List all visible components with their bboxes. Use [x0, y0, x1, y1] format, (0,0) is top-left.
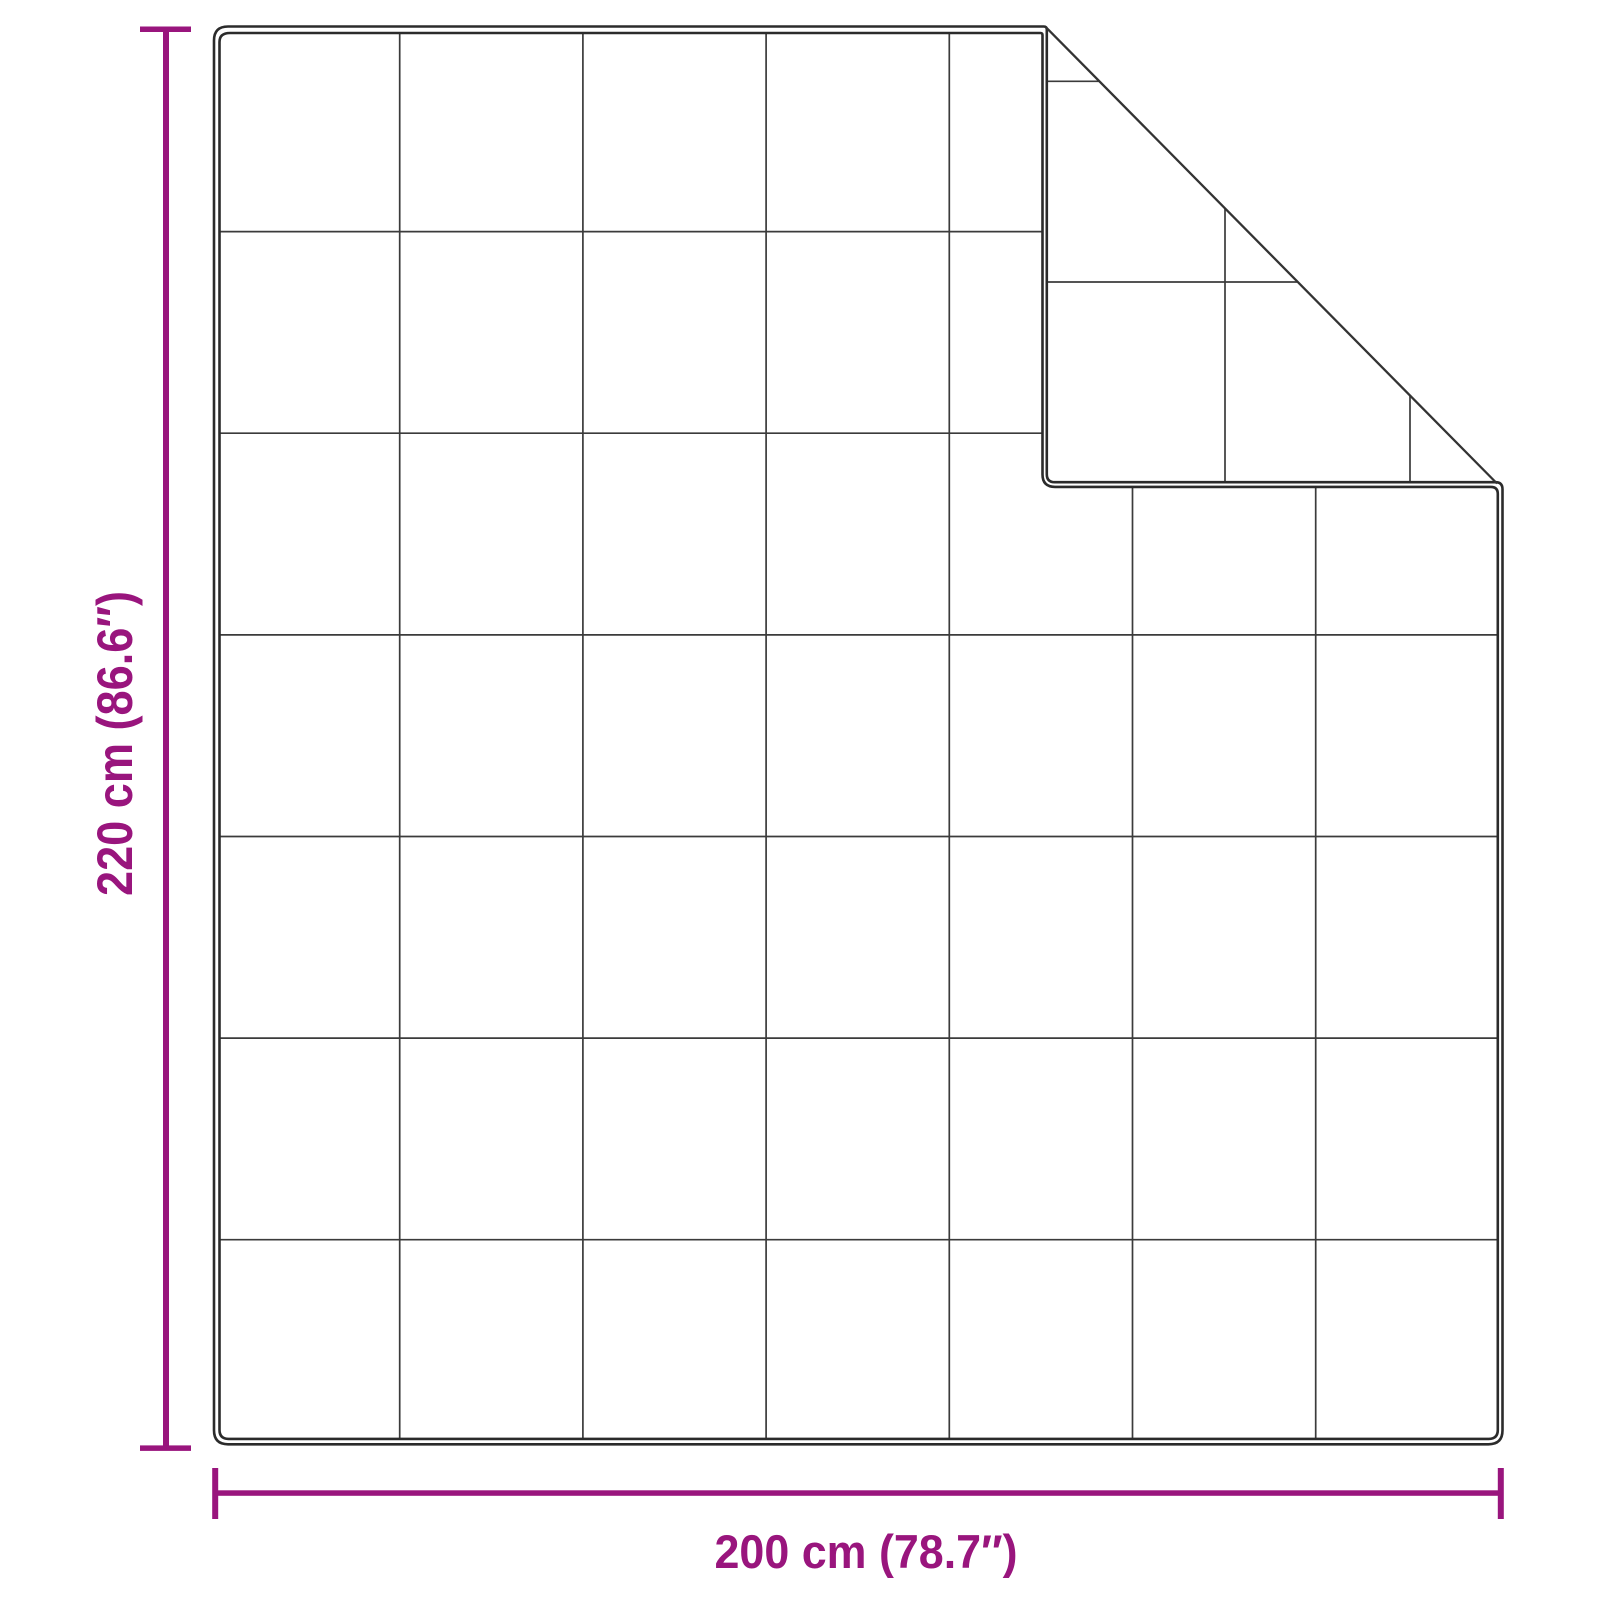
svg-text:220 cm (86.6″): 220 cm (86.6″): [87, 591, 143, 896]
svg-text:200 cm (78.7″): 200 cm (78.7″): [715, 1525, 1018, 1578]
